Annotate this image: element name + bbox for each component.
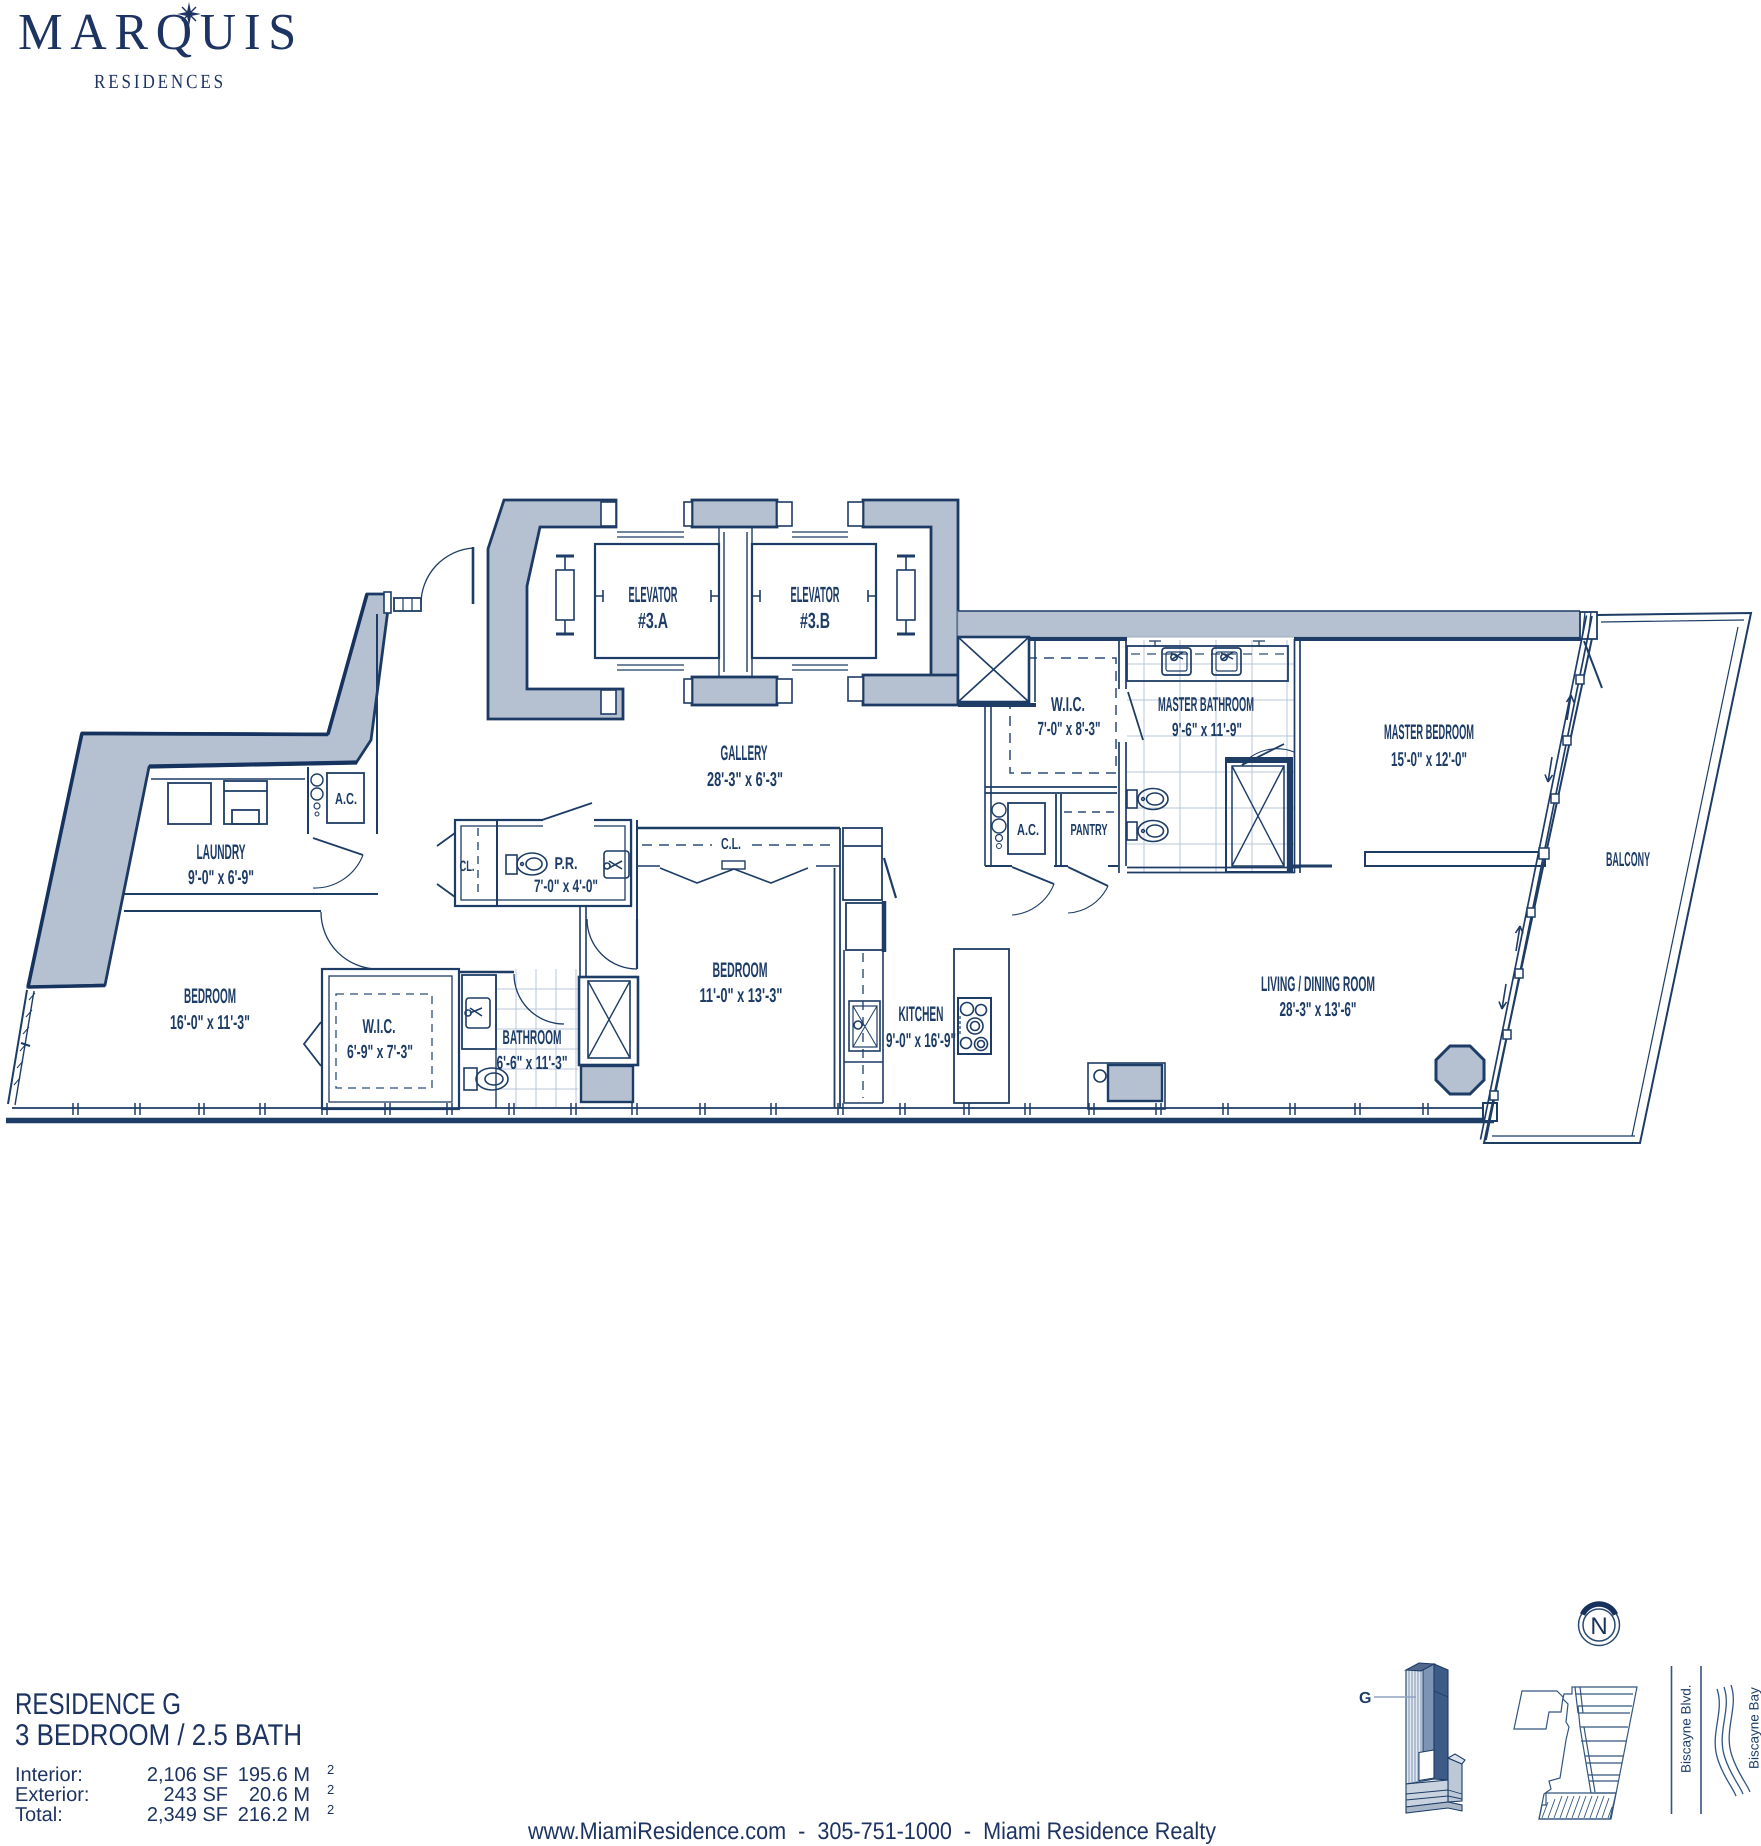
svg-text:RESIDENCE G: RESIDENCE G xyxy=(15,1688,181,1721)
svg-text:7'-0" x 8'-3": 7'-0" x 8'-3" xyxy=(1038,719,1101,740)
svg-text:2,106 SF: 2,106 SF xyxy=(147,1764,228,1786)
svg-text:243 SF: 243 SF xyxy=(164,1784,228,1806)
svg-text:2: 2 xyxy=(327,1782,334,1797)
svg-text:Exterior:: Exterior: xyxy=(15,1784,89,1806)
svg-text:6'-9" x 7'-3": 6'-9" x 7'-3" xyxy=(347,1042,413,1063)
svg-text:2,349 SF: 2,349 SF xyxy=(147,1804,228,1826)
svg-text:KITCHEN: KITCHEN xyxy=(899,1003,944,1026)
svg-text:ELEVATOR: ELEVATOR xyxy=(629,582,678,607)
svg-text:195.6 M: 195.6 M xyxy=(238,1764,310,1786)
svg-text:LAUNDRY: LAUNDRY xyxy=(197,841,246,864)
svg-text:MASTER BATHROOM: MASTER BATHROOM xyxy=(1158,694,1254,716)
svg-text:LIVING / DINING ROOM: LIVING / DINING ROOM xyxy=(1261,973,1375,996)
svg-text:P.R.: P.R. xyxy=(555,854,578,873)
svg-text:9'-0" x 16'-9": 9'-0" x 16'-9" xyxy=(886,1030,956,1052)
svg-text:A.C.: A.C. xyxy=(335,791,357,808)
svg-text:2: 2 xyxy=(327,1762,334,1777)
svg-text:C.L.: C.L. xyxy=(721,836,741,853)
svg-text:11'-0" x 13'-3": 11'-0" x 13'-3" xyxy=(700,985,783,1007)
svg-text:BALCONY: BALCONY xyxy=(1606,849,1650,871)
svg-text:6'-6" x 11'-3": 6'-6" x 11'-3" xyxy=(497,1053,568,1074)
svg-text:20.6 M: 20.6 M xyxy=(249,1784,310,1806)
svg-text:CL.: CL. xyxy=(460,858,475,875)
svg-text:MARQUIS: MARQUIS xyxy=(18,4,304,61)
svg-text:28'-3" x 13'-6": 28'-3" x 13'-6" xyxy=(1280,999,1357,1021)
svg-text:PANTRY: PANTRY xyxy=(1071,822,1108,839)
svg-text:28'-3" x 6'-3": 28'-3" x 6'-3" xyxy=(707,769,783,791)
svg-text:www.MiamiResidence.com - 305: www.MiamiResidence.com - 305-751-1000 - … xyxy=(527,1818,1216,1845)
svg-text:9'-0" x 6'-9": 9'-0" x 6'-9" xyxy=(188,867,254,889)
svg-text:BEDROOM: BEDROOM xyxy=(184,985,236,1008)
svg-text:Interior:: Interior: xyxy=(15,1764,83,1786)
svg-text:G: G xyxy=(1359,1690,1371,1707)
svg-text:9'-6" x 11'-9": 9'-6" x 11'-9" xyxy=(1172,720,1242,741)
svg-text:N: N xyxy=(1590,1613,1607,1640)
svg-text:#3.A: #3.A xyxy=(638,608,668,633)
svg-text:3 BEDROOM / 2.5 BATH: 3 BEDROOM / 2.5 BATH xyxy=(15,1719,302,1752)
svg-text:Biscayne Bay: Biscayne Bay xyxy=(1747,1687,1761,1769)
svg-text:RESIDENCES: RESIDENCES xyxy=(94,71,226,93)
svg-text:216.2 M: 216.2 M xyxy=(238,1804,310,1826)
svg-text:BEDROOM: BEDROOM xyxy=(713,959,768,982)
svg-text:BATHROOM: BATHROOM xyxy=(503,1027,562,1049)
svg-text:MASTER BEDROOM: MASTER BEDROOM xyxy=(1384,721,1474,744)
svg-text:ELEVATOR: ELEVATOR xyxy=(791,582,840,607)
svg-text:15'-0" x 12'-0": 15'-0" x 12'-0" xyxy=(1391,749,1467,771)
svg-text:Biscayne Blvd.: Biscayne Blvd. xyxy=(1679,1684,1694,1773)
svg-text:A.C.: A.C. xyxy=(1017,822,1039,839)
svg-text:#3.B: #3.B xyxy=(800,608,830,633)
svg-text:W.I.C.: W.I.C. xyxy=(363,1016,396,1038)
svg-text:Total:: Total: xyxy=(15,1804,63,1826)
svg-text:W.I.C.: W.I.C. xyxy=(1051,694,1085,716)
svg-text:GALLERY: GALLERY xyxy=(721,742,768,765)
svg-text:7'-0" x 4'-0": 7'-0" x 4'-0" xyxy=(534,876,598,896)
svg-text:2: 2 xyxy=(327,1802,334,1817)
svg-text:16'-0" x 11'-3": 16'-0" x 11'-3" xyxy=(170,1012,250,1034)
